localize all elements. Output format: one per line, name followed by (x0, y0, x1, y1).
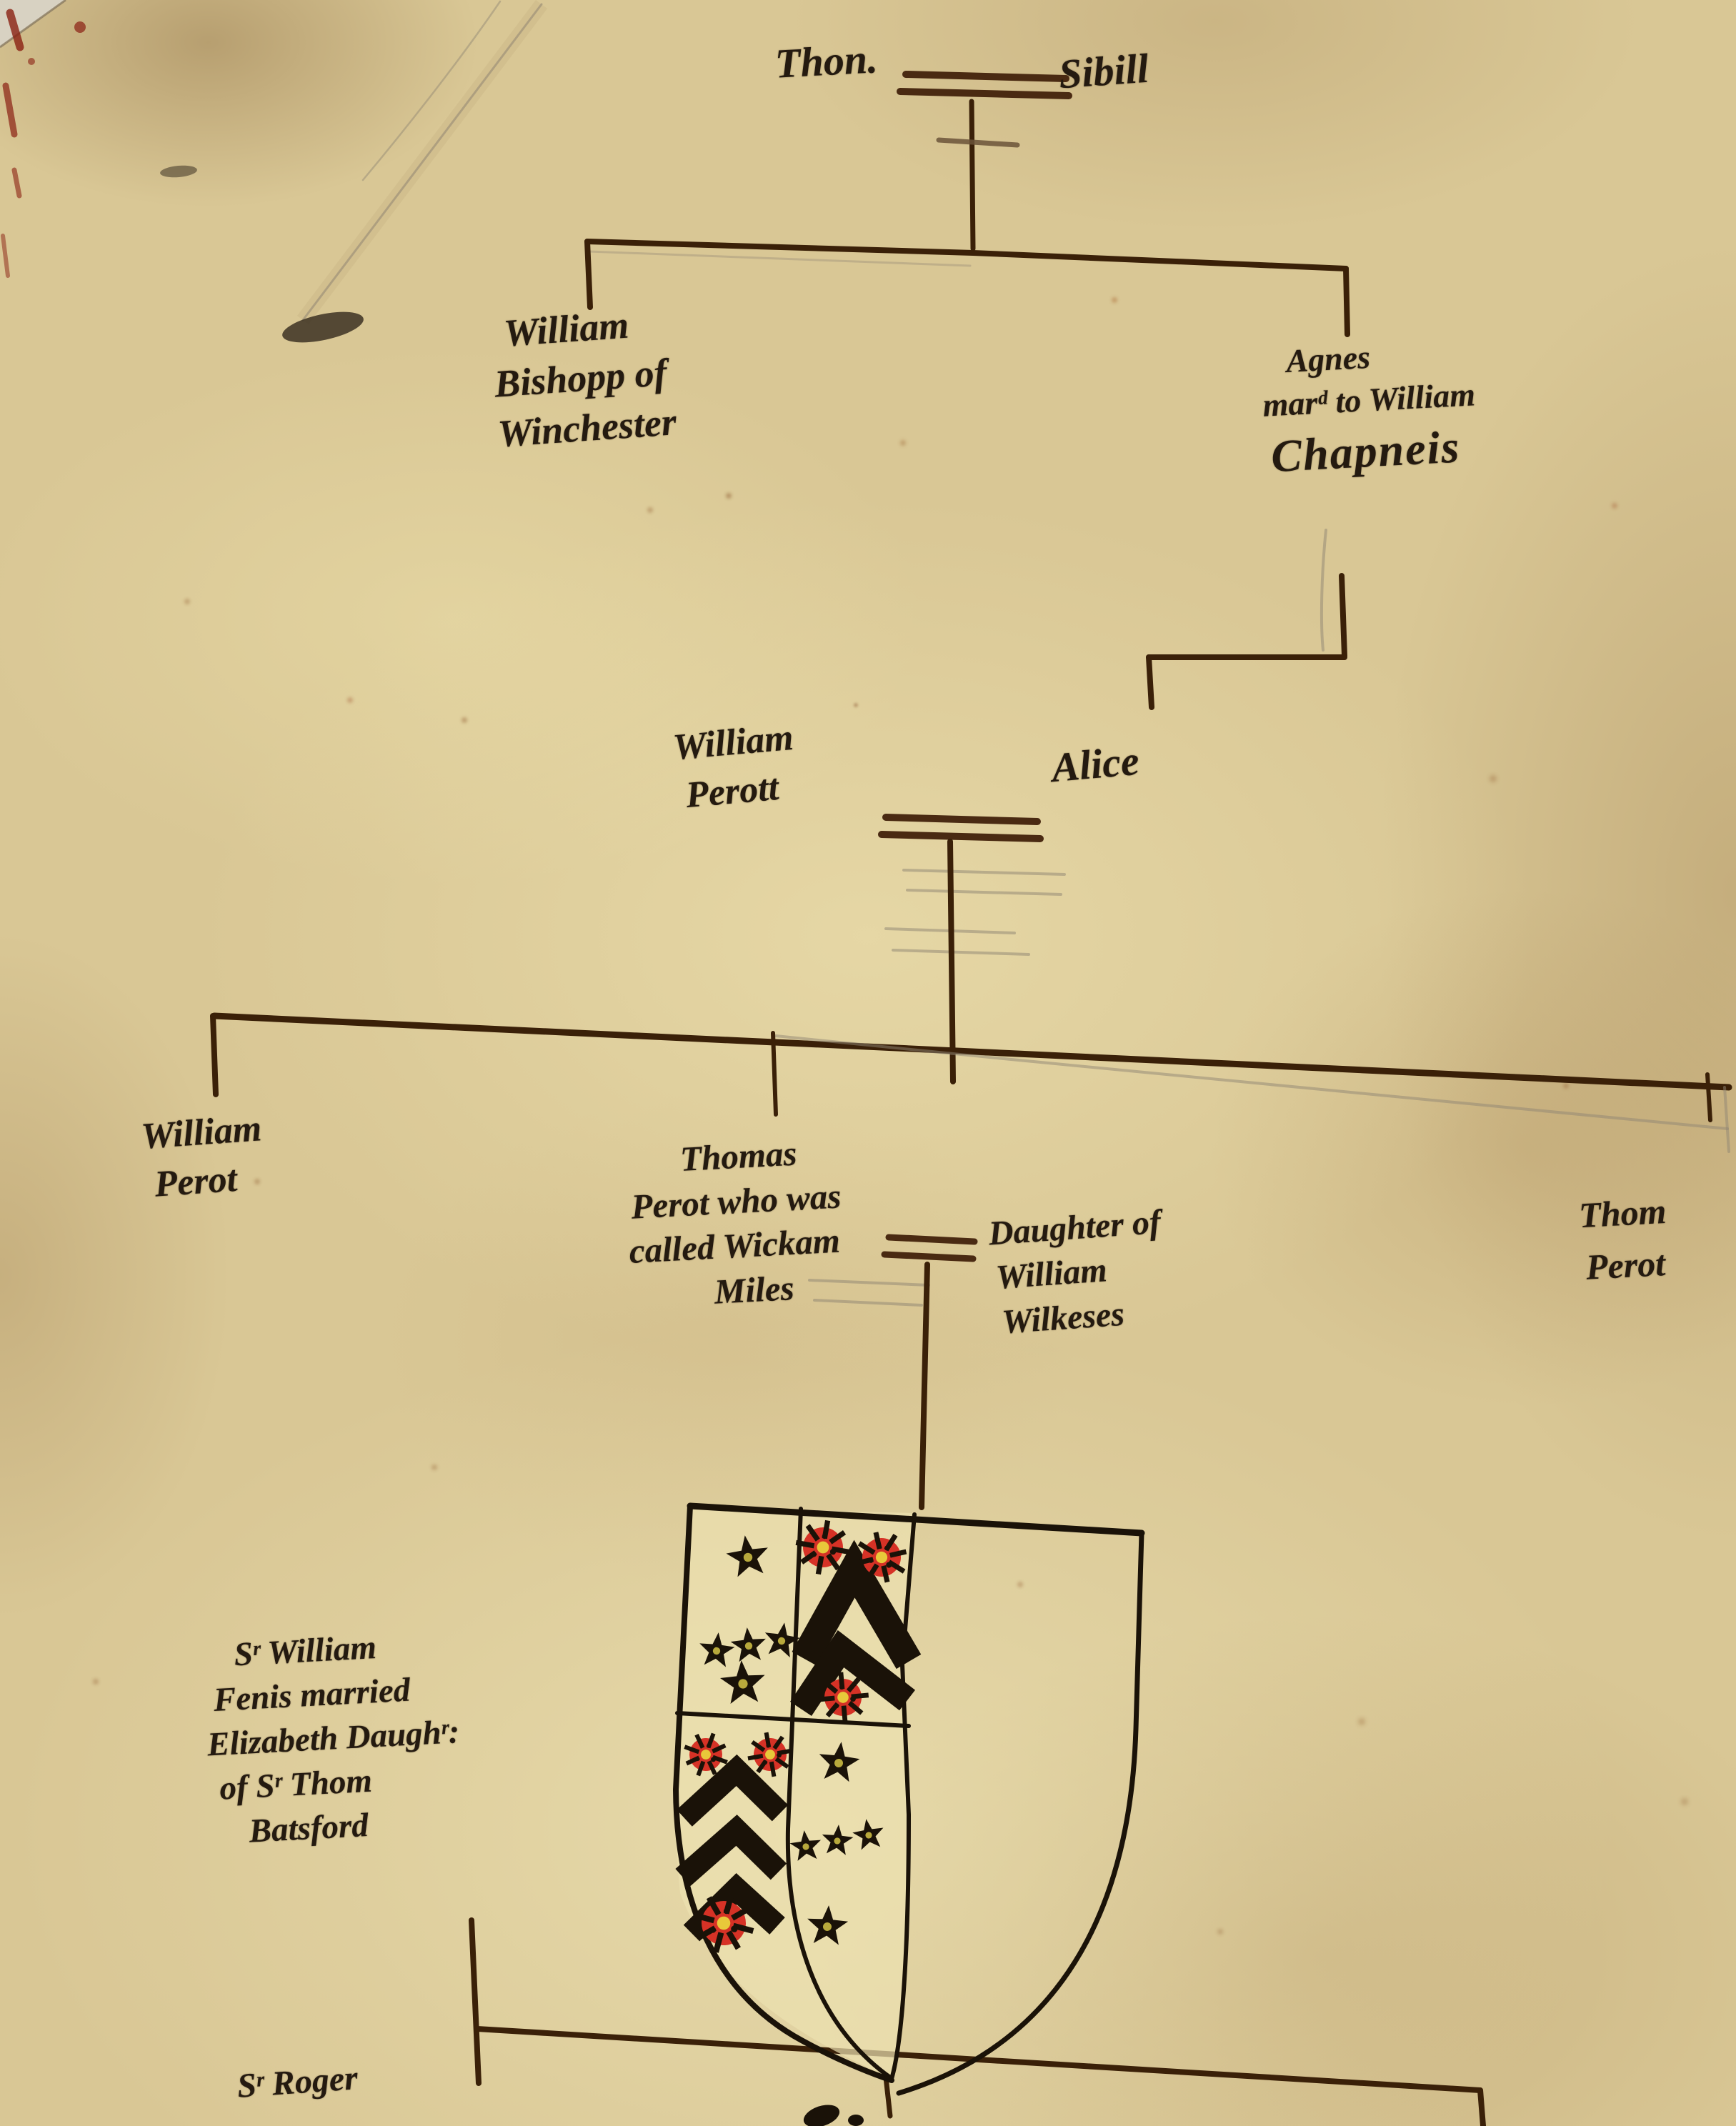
person-roger: Sʳ Roger (236, 2056, 359, 2109)
person-agnes: Agnes marᵈ to William Chapneis (1259, 330, 1480, 486)
person-william-perot: William Perot (139, 1104, 266, 1209)
ink-smudge (280, 306, 366, 348)
person-thom-perot: Thom Perot (1577, 1185, 1670, 1293)
person-william-bishopp: William Bishopp of Winchester (489, 297, 678, 459)
manuscript-page: { "document": { "kind": "handwritten gen… (0, 0, 1736, 2126)
person-name: Sibill (1057, 41, 1151, 101)
marriage-line-gen1 (906, 74, 1066, 79)
erased-pencil-notes (886, 870, 1064, 954)
descent-line-fenis (472, 1920, 479, 2083)
person-thomas-perot: Thomas Perot who was called Wickam Miles (628, 1129, 847, 1319)
note-fenis-marriage: Sʳ William Fenis married Elizabeth Daugh… (210, 1621, 465, 1855)
descent-line-gen3 (950, 842, 953, 1082)
person-daughter-wilkeses: Daughter of William Wilkeses (987, 1200, 1169, 1346)
descent-line-gen1 (972, 101, 973, 249)
person-sibill: Sibill (1057, 41, 1151, 101)
red-crayon-marks (3, 13, 86, 276)
person-alice: Alice (1049, 734, 1142, 795)
person-thon: Thon. (774, 31, 879, 91)
coat-of-arms (675, 1506, 1142, 2093)
sibling-bar-gen4 (214, 1016, 1729, 1087)
partial-ink-blot (801, 2101, 864, 2126)
descent-line-gen4 (922, 1264, 927, 1507)
crease-marks (159, 1, 542, 349)
marriage-line-gen3 (886, 817, 1037, 822)
shield-outline-right (899, 1533, 1142, 2093)
descent-line-chapneis (1342, 576, 1345, 656)
person-william-perott: William Perott (671, 714, 799, 820)
person-name: Thon. (774, 31, 879, 91)
marriage-line-gen4 (889, 1237, 974, 1242)
